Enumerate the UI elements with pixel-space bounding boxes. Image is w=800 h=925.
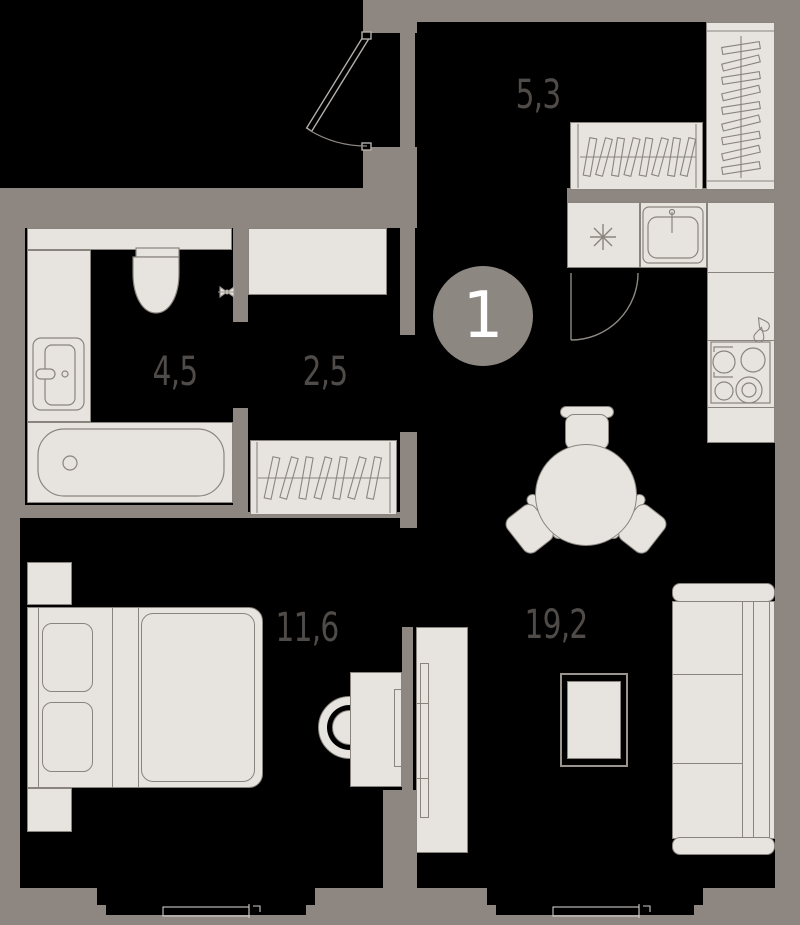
sofa-icon [672,583,775,602]
sofa-seam [769,602,770,838]
wall [567,188,800,202]
tv-icon [420,663,429,818]
floor-plan: 5,3 4,5 2,5 11,6 19,2 1 [0,0,800,925]
room-label-corridor: 2,5 [303,349,348,395]
sofa-armrest [672,837,775,855]
entry-door-icon [307,32,371,150]
wall [363,22,417,33]
wall [0,188,417,228]
counter-divider [707,340,775,341]
tv-stand-divider [416,703,429,704]
dining-table-icon [535,444,637,546]
wall [233,408,248,518]
room-label-hall: 5,3 [516,72,561,118]
window-jamb [694,905,703,915]
nightstand-icon [27,562,72,605]
wall [775,0,800,925]
closet-icon [248,228,387,295]
kitchen-counter [567,202,640,268]
wall [402,627,413,790]
kitchen-sink-unit [640,202,707,268]
bed-line [112,608,113,787]
wall [363,0,800,22]
sofa-seam [753,602,754,838]
wall [400,228,415,335]
window [487,888,703,915]
bed-mattress [141,613,255,782]
nightstand-icon [27,788,72,832]
wall [363,147,417,188]
tv-stand-divider [416,778,429,779]
wall [0,505,248,518]
sofa-seam [673,674,743,675]
window-jamb [306,905,315,915]
wall [383,790,417,888]
bathroom-counter [27,250,91,422]
window-jamb [97,905,106,915]
room-label-living: 19,2 [525,602,588,648]
wall [400,33,415,147]
wall [0,228,25,518]
monitor-icon [394,689,402,767]
pillow-icon [42,702,93,772]
counter-divider [707,407,775,408]
wall [233,228,248,322]
wall [0,518,20,888]
toilet-icon [133,248,179,313]
bed-line [138,608,139,787]
bathtub-icon [27,422,233,503]
kitchen-door-icon [571,273,638,340]
room-label-bedroom: 11,6 [276,605,339,651]
entry-door-arc [309,130,367,146]
pillow-icon [42,623,93,692]
sofa-seam [742,602,743,838]
room-label-bathroom: 4,5 [153,349,198,395]
counter-divider [707,272,775,273]
window [97,888,315,915]
wardrobe-icon [706,22,775,190]
bed-headboard-line [38,608,39,787]
window-jamb [487,905,496,915]
bathroom-shelf [27,228,232,250]
ottoman-top [567,681,621,759]
sofa-body [672,601,775,839]
wardrobe-icon [250,440,397,515]
sofa-seam [673,763,743,764]
unit-number-badge: 1 [433,266,533,366]
wall [400,432,417,528]
wardrobe-icon [570,122,703,190]
